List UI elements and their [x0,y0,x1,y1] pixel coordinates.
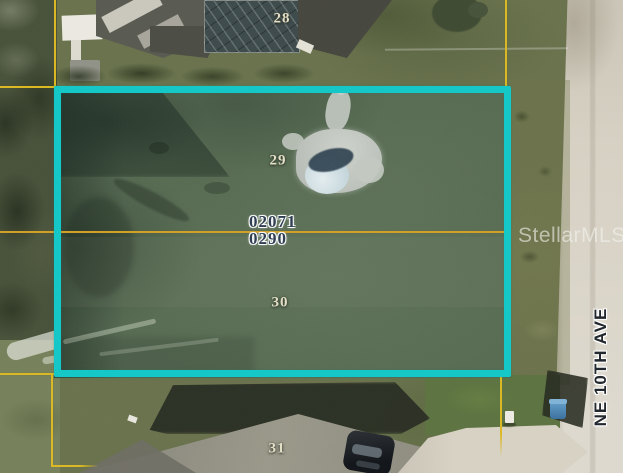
roof-vent [127,415,138,424]
parcel-line-vertical-bottom-left [51,373,53,467]
lot-number-31: 31 [269,441,286,458]
mailbox [505,411,514,423]
aerial-parcel-map: 28 29 30 31 02071 0290 StellarMLS NE 10T… [0,0,623,473]
parcel-line-vertical-top-right [505,0,507,89]
lot-number-30: 30 [272,295,289,312]
parcel-line-vertical-bottom-right [500,377,502,457]
parcel-line-horizontal-bottom-left [0,373,54,375]
tree-line-left [0,0,57,352]
bush [468,2,488,18]
street-name-label: NE 10TH AVE [591,289,611,445]
lot-number-28: 28 [274,11,291,28]
lot-number-29: 29 [270,153,287,170]
parcel-line-horizontal-bottom [51,465,99,467]
trash-can-lid [549,399,567,404]
parcel-line-vertical-top-left [54,0,56,88]
faint-parcel-line [385,47,568,51]
stellar-mls-watermark: StellarMLS [518,224,623,248]
parcel-line-horizontal-top-left [0,86,55,88]
parcel-id-line2: 0290 [249,229,287,249]
